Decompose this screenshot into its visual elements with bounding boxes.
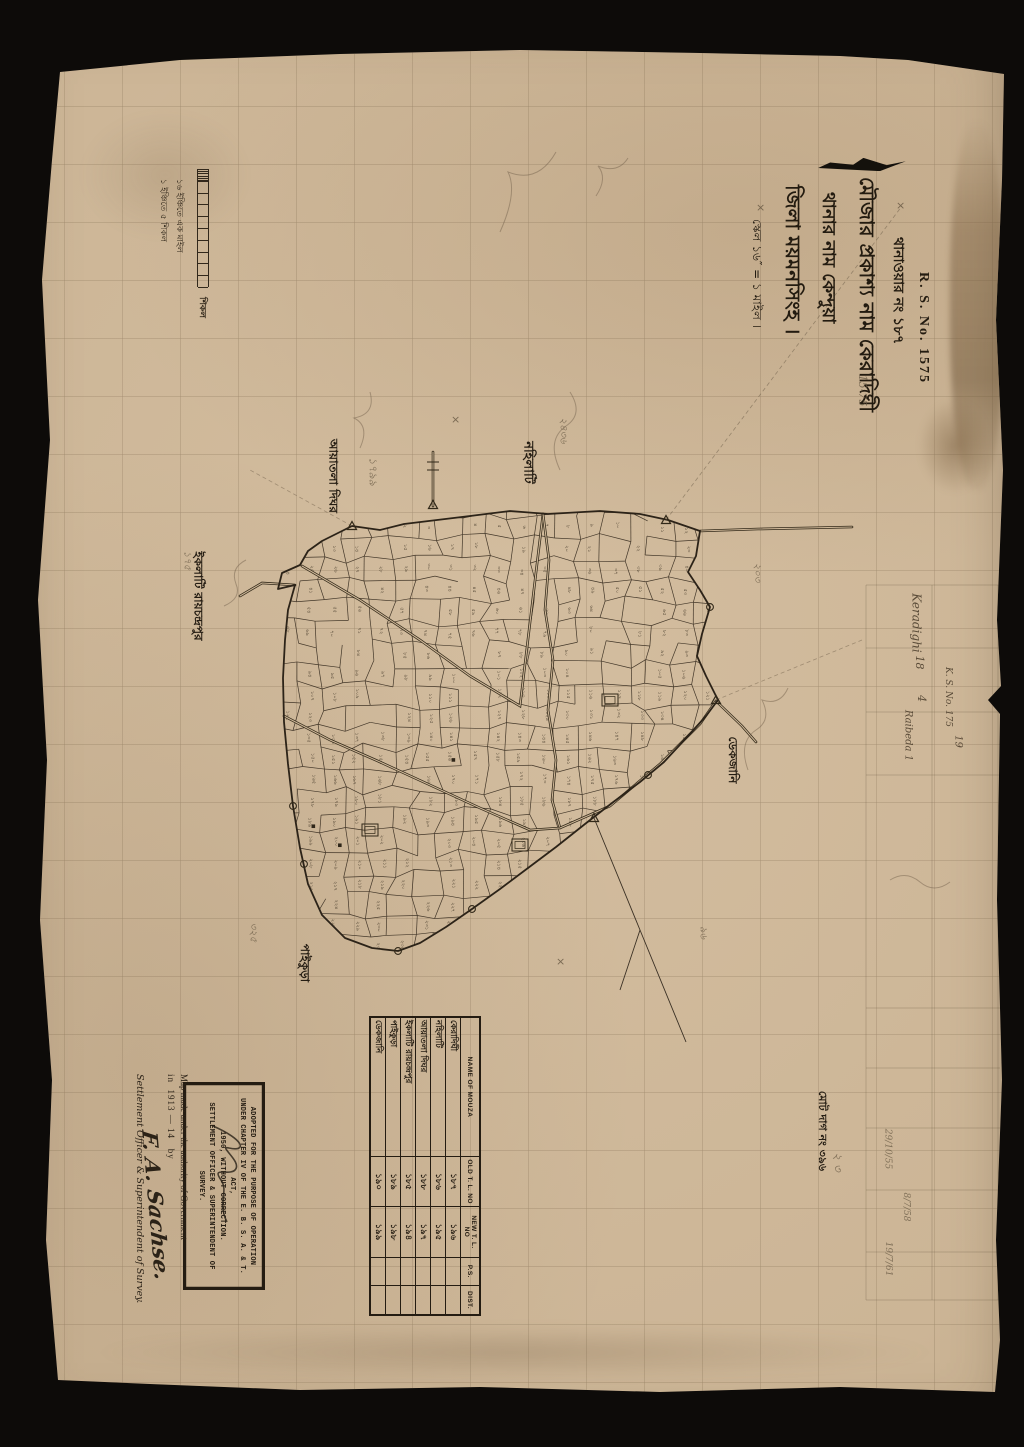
svg-text:৫৮: ৫৮ bbox=[447, 609, 453, 616]
svg-text:১৭৮: ১৭৮ bbox=[309, 798, 315, 808]
table-header: DIST. bbox=[461, 1285, 481, 1315]
table-cell bbox=[416, 1257, 431, 1285]
svg-text:১১৯: ১১৯ bbox=[656, 692, 662, 702]
svg-text:১৮৪: ১৮৪ bbox=[497, 797, 503, 807]
svg-text:১১৫: ১১৫ bbox=[565, 689, 571, 699]
handwritten-note: ২ ৩ bbox=[826, 1146, 846, 1178]
svg-text:২০১: ২০১ bbox=[355, 836, 361, 846]
table-row: আয়াতলা দিঘর১৮৮১৯৭ bbox=[416, 1017, 431, 1315]
table-cell bbox=[386, 1257, 401, 1285]
svg-text:২৫: ২৫ bbox=[308, 565, 314, 572]
scale-rung bbox=[198, 228, 208, 229]
svg-text:৯৮: ৯৮ bbox=[403, 674, 409, 681]
stain-bottom bbox=[90, 1325, 940, 1380]
handwritten-note: 18 bbox=[913, 651, 926, 674]
svg-text:২১৯: ২১৯ bbox=[379, 880, 385, 890]
svg-text:১৬: ১৬ bbox=[426, 544, 432, 551]
svg-text:১০৫: ১০৫ bbox=[656, 669, 662, 679]
svg-text:২২০: ২২০ bbox=[400, 880, 406, 890]
svg-text:১৯৯: ১৯৯ bbox=[308, 836, 314, 846]
table-cell: ডেকজানি bbox=[370, 1017, 386, 1156]
svg-text:১৪৭: ১৪৭ bbox=[613, 731, 619, 741]
svg-text:১৪২: ১৪২ bbox=[495, 732, 501, 742]
svg-text:১০৯: ১০৯ bbox=[354, 689, 360, 699]
svg-text:২৩: ২৩ bbox=[685, 546, 691, 553]
svg-text:১০০: ১০০ bbox=[450, 674, 456, 684]
table-cell: ১৮৭ bbox=[446, 1156, 461, 1206]
handwritten-note: 19/7/61 bbox=[883, 1235, 893, 1283]
svg-text:১৬৩: ১৬৩ bbox=[611, 755, 617, 765]
paper-tear-gash bbox=[818, 156, 907, 175]
rs-number: R. S. No. 1575 bbox=[915, 272, 931, 487]
stamp-line-5: SURVEY. bbox=[196, 1088, 206, 1284]
svg-text:১৯৩: ১৯৩ bbox=[425, 817, 431, 827]
table-row: ডেকজানি১৯০১৯৯ bbox=[370, 1017, 386, 1315]
stamp-line-4: SETTLEMENT OFFICER & SUPERINTENDENT OF bbox=[206, 1088, 216, 1284]
svg-text:১৩০: ১৩০ bbox=[564, 710, 570, 720]
svg-text:২২৬: ২২৬ bbox=[425, 902, 431, 913]
svg-text:১১৪: ১১৪ bbox=[546, 689, 552, 699]
svg-text:১৯: ১৯ bbox=[520, 546, 526, 553]
svg-text:৭০: ৭০ bbox=[328, 630, 334, 637]
boundary-circle bbox=[707, 604, 714, 611]
svg-text:৯১: ৯১ bbox=[589, 648, 595, 655]
table-cell bbox=[446, 1257, 461, 1285]
svg-text:১৮৮: ১৮৮ bbox=[591, 796, 597, 806]
plot-mesh bbox=[268, 491, 749, 962]
handwritten-note: 8/7/58 bbox=[901, 1186, 911, 1228]
handwritten-note: ৯৬ bbox=[694, 922, 711, 944]
svg-text:২২৮: ২২৮ bbox=[329, 919, 335, 930]
svg-text:৯৪: ৯৪ bbox=[307, 671, 313, 678]
svg-text:১৯২: ১৯২ bbox=[401, 814, 407, 824]
svg-text:৭২: ৭২ bbox=[378, 628, 384, 635]
svg-text:৬৫: ৬৫ bbox=[661, 609, 667, 616]
svg-text:২৩১: ২৩১ bbox=[423, 920, 429, 930]
svg-text:১৯০: ১৯০ bbox=[331, 817, 337, 827]
svg-text:৪৩: ৪৩ bbox=[423, 585, 429, 592]
svg-text:৯: ৯ bbox=[588, 524, 594, 527]
svg-text:১৭৫: ১৭৫ bbox=[589, 775, 595, 785]
margin-form-lines bbox=[866, 585, 1000, 1300]
svg-text:১৩৭: ১৩৭ bbox=[353, 732, 359, 742]
svg-text:২২৪: ২২৪ bbox=[333, 900, 339, 910]
svg-text:৮৬: ৮৬ bbox=[425, 653, 431, 660]
scale-rung bbox=[198, 275, 208, 276]
svg-text:১৪৩: ১৪৩ bbox=[516, 732, 522, 742]
svg-text:১৩৮: ১৩৮ bbox=[379, 731, 385, 741]
scale-note-2: ১ ইঞ্চিতে ৫ শিকল bbox=[155, 179, 171, 313]
svg-text:২১১: ২১১ bbox=[382, 859, 388, 869]
scale-unit-label: শিকল bbox=[195, 297, 210, 318]
svg-text:১৬৬: ১৬৬ bbox=[332, 775, 338, 785]
table-cell: কেরাদিঘী bbox=[446, 1017, 461, 1156]
svg-text:১৯৮: ১৯৮ bbox=[567, 817, 573, 827]
svg-text:১৫০: ১৫০ bbox=[310, 753, 316, 763]
svg-text:২০: ২০ bbox=[564, 545, 570, 552]
boundary-circle bbox=[301, 861, 308, 868]
svg-text:১৬৮: ১৬৮ bbox=[377, 776, 383, 786]
svg-text:২২১: ২২১ bbox=[451, 879, 457, 889]
svg-text:১৩৩: ১৩৩ bbox=[639, 710, 645, 720]
scale-rung bbox=[198, 287, 208, 288]
svg-text:২১০: ২১০ bbox=[357, 860, 363, 870]
scale-rung bbox=[198, 216, 208, 217]
svg-text:৭৭: ৭৭ bbox=[493, 627, 499, 634]
svg-text:৪০: ৪০ bbox=[684, 566, 690, 573]
mouza-name-line: মৌজার প্রকাশ্য নাম কেরাদিঘী bbox=[848, 177, 881, 487]
boundary-circle bbox=[290, 803, 297, 810]
svg-text:৭৩: ৭৩ bbox=[398, 628, 404, 635]
svg-text:১০৮: ১০৮ bbox=[332, 692, 338, 702]
scale-rung bbox=[198, 240, 208, 241]
svg-text:৯২: ৯২ bbox=[659, 650, 665, 657]
svg-text:১৫৯: ১৫৯ bbox=[515, 753, 521, 763]
neighbour-mouza-label: আয়াতলা দিঘর bbox=[322, 424, 342, 527]
attribution-line-1: Map made under the authority of Governme… bbox=[179, 1074, 189, 1314]
svg-text:১০৬: ১০৬ bbox=[681, 670, 687, 680]
svg-text:২১৪: ২১৪ bbox=[495, 860, 501, 870]
svg-text:৪: ৪ bbox=[472, 523, 478, 526]
svg-text:১৮১: ১৮১ bbox=[377, 794, 383, 804]
table-cell: ইকলাটি রায়চন্দ্রপুর bbox=[401, 1017, 416, 1156]
table-cell: ১৯৫ bbox=[431, 1207, 446, 1257]
svg-text:৫০: ৫০ bbox=[614, 587, 620, 594]
svg-text:৩৫: ৩৫ bbox=[541, 566, 547, 573]
svg-text:১১১: ১১১ bbox=[447, 693, 453, 703]
svg-text:১৯১: ১৯১ bbox=[353, 815, 359, 825]
svg-text:১৬২: ১৬২ bbox=[586, 753, 592, 763]
attribution-years: 1913 — 14 bbox=[166, 1090, 176, 1140]
svg-text:৩২: ৩২ bbox=[471, 564, 477, 571]
neighbour-mouza-label: ডেকজানি bbox=[721, 727, 741, 793]
svg-text:১২৭: ১২৭ bbox=[496, 710, 502, 720]
svg-text:২০৭: ২০৭ bbox=[545, 837, 551, 847]
svg-text:২১৬: ২১৬ bbox=[308, 882, 314, 892]
svg-text:২৩২: ২৩২ bbox=[445, 921, 451, 931]
mouza-boundary bbox=[278, 511, 718, 951]
svg-text:৬৯: ৬৯ bbox=[304, 629, 310, 636]
svg-text:৫: ৫ bbox=[496, 525, 502, 528]
table-row: ইকলাটি রায়চন্দ্রপুর১৮৫১৯৪ bbox=[401, 1017, 416, 1315]
svg-text:৮৫: ৮৫ bbox=[402, 652, 408, 659]
scale-subtick bbox=[198, 173, 208, 174]
svg-text:৮১: ৮১ bbox=[636, 631, 642, 638]
svg-text:৩৭: ৩৭ bbox=[613, 568, 619, 575]
title-block: R. S. No. 1575 থানাওয়ার নং ১৮৭ মৌজার প্… bbox=[753, 177, 923, 487]
scale-subtick bbox=[198, 178, 208, 179]
handwritten-note: 15-75 bbox=[856, 369, 869, 412]
table-cell bbox=[386, 1285, 401, 1315]
svg-text:১২৩: ১২৩ bbox=[307, 712, 313, 722]
mouza-table: NAME OF MOUZAOLD T. L. NONEW T. L. NOP.S… bbox=[369, 1016, 481, 1316]
svg-text:৩: ৩ bbox=[425, 526, 431, 530]
plot-numbers: ১২৩৪৫৬৭৮৯১০১১১২১৩১৪১৫১৬১৭১৮১৯২০২১২২২৩২৪২… bbox=[284, 522, 711, 953]
svg-text:১৮৯: ১৮৯ bbox=[307, 818, 313, 828]
trijunction-triangle bbox=[662, 516, 671, 524]
svg-text:১২৪: ১২৪ bbox=[406, 712, 412, 722]
trijunction-triangle bbox=[712, 696, 721, 704]
table-cell bbox=[401, 1257, 416, 1285]
pencil-cross: × bbox=[896, 199, 905, 212]
svg-text:১৭৪: ১৭৪ bbox=[566, 776, 572, 786]
svg-text:৪৮: ৪৮ bbox=[566, 587, 572, 594]
svg-text:৬৭: ৬৭ bbox=[705, 609, 711, 616]
table-cell bbox=[370, 1257, 386, 1285]
svg-text:৮৭: ৮৭ bbox=[496, 651, 502, 658]
svg-text:৮৩: ৮৩ bbox=[683, 629, 689, 636]
svg-text:৮৯: ৮৯ bbox=[539, 651, 545, 658]
svg-text:৪৭: ৪৭ bbox=[519, 588, 525, 595]
svg-text:২০৬: ২০৬ bbox=[520, 837, 526, 848]
paper-edge-nick bbox=[986, 688, 1004, 714]
svg-text:২২৩: ২২৩ bbox=[497, 881, 503, 892]
svg-text:১৮৫: ১৮৫ bbox=[519, 796, 525, 806]
svg-text:২০২: ২০২ bbox=[378, 835, 384, 845]
handwritten-note: ২০৩ bbox=[748, 559, 765, 587]
svg-text:১৭৭: ১৭৭ bbox=[638, 775, 644, 785]
adoption-stamp: ADOPTED FOR THE PURPOSE OF OPERATION UND… bbox=[183, 1082, 265, 1290]
svg-text:১১৩: ১১৩ bbox=[520, 688, 526, 698]
svg-text:১০: ১০ bbox=[614, 522, 620, 529]
table-header: NEW T. L. NO bbox=[461, 1207, 481, 1257]
svg-text:৪৫: ৪৫ bbox=[471, 586, 477, 593]
svg-text:৩৮: ৩৮ bbox=[635, 566, 641, 573]
scale-text-line: স্কেল ১৬″ = ১ মাইল । bbox=[745, 219, 765, 487]
handwritten-note: Raibeda 1 bbox=[903, 704, 914, 768]
table-cell bbox=[370, 1285, 386, 1315]
svg-text:২৯: ২৯ bbox=[403, 566, 409, 573]
svg-text:১৪৬: ১৪৬ bbox=[587, 731, 593, 741]
table-cell: ১৯০ bbox=[370, 1156, 386, 1206]
svg-text:১৫৬: ১৫৬ bbox=[447, 751, 453, 761]
mouza-table-wrap: NAME OF MOUZAOLD T. L. NONEW T. L. NOP.S… bbox=[369, 1016, 481, 1316]
svg-text:৩১: ৩১ bbox=[447, 564, 453, 571]
svg-text:১৮০: ১৮০ bbox=[353, 796, 359, 806]
svg-text:১৪১: ১৪১ bbox=[448, 732, 454, 742]
svg-text:২২৯: ২২৯ bbox=[354, 921, 360, 931]
svg-text:১২০: ১২০ bbox=[682, 690, 688, 700]
svg-text:২০৫: ২০৫ bbox=[495, 839, 501, 849]
thana-name-line: থানার নাম কেন্দুয়া bbox=[812, 192, 843, 487]
attribution-by: by bbox=[166, 1149, 176, 1160]
table-header: NAME OF MOUZA bbox=[461, 1017, 481, 1156]
svg-text:৫৩: ৫৩ bbox=[682, 589, 688, 596]
svg-text:৫১: ৫১ bbox=[637, 586, 643, 593]
stamp-line-1: ADOPTED FOR THE PURPOSE OF OPERATION bbox=[247, 1088, 257, 1284]
svg-text:১৭৬: ১৭৬ bbox=[613, 775, 619, 785]
svg-text:৮০: ৮০ bbox=[588, 626, 594, 633]
svg-text:১২৯: ১২৯ bbox=[544, 711, 550, 721]
pencil-cross: × bbox=[556, 955, 565, 968]
boundary-circle bbox=[469, 906, 476, 913]
svg-text:২০৯: ২০৯ bbox=[332, 860, 338, 870]
boundary-circle bbox=[395, 948, 402, 955]
boundary-circle bbox=[645, 772, 652, 779]
svg-text:১৪: ১৪ bbox=[354, 546, 360, 553]
table-cell bbox=[431, 1285, 446, 1315]
svg-text:১২৬: ১২৬ bbox=[447, 713, 453, 723]
svg-text:১১২: ১১২ bbox=[497, 688, 503, 698]
svg-text:২: ২ bbox=[401, 525, 407, 528]
table-cell bbox=[446, 1285, 461, 1315]
svg-text:১৫৮: ১৫৮ bbox=[495, 752, 501, 762]
svg-text:১৪৪: ১৪৪ bbox=[540, 734, 546, 744]
table-cell: ১৮৬ bbox=[431, 1156, 446, 1206]
trijunction-triangle bbox=[429, 501, 438, 509]
table-header: OLD T. L. NO bbox=[461, 1156, 481, 1206]
svg-text:২১: ২১ bbox=[586, 546, 592, 553]
svg-text:৪৬: ৪৬ bbox=[496, 588, 502, 595]
svg-text:৫৫: ৫৫ bbox=[332, 606, 338, 613]
svg-text:৪৯: ৪৯ bbox=[590, 587, 596, 594]
table-row: পাইকুড়া১৮৯১৯৮ bbox=[386, 1017, 401, 1315]
svg-text:১০৩: ১০৩ bbox=[541, 668, 547, 678]
svg-text:২১৭: ২১৭ bbox=[332, 881, 338, 891]
svg-text:১৭১: ১৭১ bbox=[473, 775, 479, 785]
table-row: নহিলাটি১৮৬১৯৫ bbox=[431, 1017, 446, 1315]
svg-text:৮২: ৮২ bbox=[661, 630, 667, 637]
district-line: জিলা ময়মনসিংহ । bbox=[774, 185, 807, 487]
svg-text:১০৪: ১০৪ bbox=[564, 668, 570, 678]
svg-text:২১২: ২১২ bbox=[404, 858, 410, 868]
svg-text:১১৭: ১১৭ bbox=[616, 690, 622, 700]
svg-text:২০৪: ২০৪ bbox=[470, 837, 476, 847]
svg-text:১৩৬: ১৩৬ bbox=[330, 734, 336, 744]
pencil-cross: × bbox=[451, 413, 460, 426]
svg-text:১৫৫: ১৫৫ bbox=[424, 752, 430, 762]
svg-text:৬৪: ৬৪ bbox=[588, 606, 594, 613]
svg-text:১৬৫: ১৬৫ bbox=[311, 774, 317, 784]
svg-text:৭৬: ৭৬ bbox=[470, 630, 476, 637]
svg-text:১৩৪: ১৩৪ bbox=[659, 711, 665, 721]
table-cell: ১৯৯ bbox=[370, 1207, 386, 1257]
svg-text:১৩২: ১৩২ bbox=[616, 708, 622, 718]
scale-rung bbox=[198, 252, 208, 253]
handwritten-note: 19 bbox=[953, 731, 964, 753]
svg-text:৯৩: ৯৩ bbox=[683, 650, 689, 657]
svg-text:২১৮: ২১৮ bbox=[357, 879, 363, 889]
svg-text:১১৮: ১১৮ bbox=[636, 691, 642, 701]
svg-text:১৪০: ১৪০ bbox=[428, 732, 434, 742]
svg-text:৬২: ৬২ bbox=[543, 609, 549, 616]
svg-text:৫২: ৫২ bbox=[659, 588, 665, 595]
svg-text:১৬০: ১৬০ bbox=[541, 754, 547, 764]
svg-text:১৫: ১৫ bbox=[402, 544, 408, 551]
svg-text:৭৯: ৭৯ bbox=[541, 631, 547, 638]
attribution-block: Map made under the authority of Governme… bbox=[105, 1074, 189, 1314]
svg-text:১৫২: ১৫২ bbox=[350, 754, 356, 764]
svg-text:২০০: ২০০ bbox=[333, 837, 339, 847]
svg-text:২১৫: ২১৫ bbox=[517, 859, 523, 869]
svg-text:১৭৩: ১৭৩ bbox=[542, 774, 548, 784]
svg-text:১৫৭: ১৫৭ bbox=[472, 751, 478, 761]
scale-subtick bbox=[198, 176, 208, 177]
svg-text:৯৭: ৯৭ bbox=[380, 671, 386, 678]
svg-text:২১৩: ২১৩ bbox=[447, 857, 453, 867]
svg-text:২৭: ২৭ bbox=[354, 566, 360, 573]
svg-text:৭৫: ৭৫ bbox=[446, 633, 452, 640]
handwritten-note: K. S. No. 175 bbox=[943, 657, 953, 737]
scale-bar: শিকল bbox=[197, 169, 209, 287]
pencil-cross: × bbox=[756, 201, 765, 214]
handwritten-note: ২৪৩৬ bbox=[554, 414, 571, 448]
svg-text:১৪৮: ১৪৮ bbox=[639, 731, 645, 741]
svg-text:২৩৩: ২৩৩ bbox=[375, 943, 381, 954]
scale-rung bbox=[198, 263, 208, 264]
table-cell: পাইকুড়া bbox=[386, 1017, 401, 1156]
svg-text:৪১: ৪১ bbox=[308, 587, 314, 594]
svg-text:১৮৬: ১৮৬ bbox=[540, 797, 546, 807]
svg-text:৩৬: ৩৬ bbox=[586, 568, 592, 575]
svg-text:২০৩: ২০৩ bbox=[446, 838, 452, 849]
thana-war-number: থানাওয়ার নং ১৮৭ bbox=[886, 237, 910, 487]
svg-text:৪৪: ৪৪ bbox=[446, 585, 452, 592]
svg-text:১০৭: ১০৭ bbox=[309, 691, 315, 701]
svg-text:১৪৯: ১৪৯ bbox=[681, 733, 687, 743]
scale-subtick bbox=[198, 171, 208, 172]
svg-text:১২: ১২ bbox=[683, 527, 689, 534]
svg-text:৮: ৮ bbox=[565, 525, 571, 529]
svg-text:১১০: ১১০ bbox=[427, 693, 433, 703]
scale-rung bbox=[198, 169, 208, 170]
svg-text:১৩৯: ১৩৯ bbox=[406, 733, 412, 743]
svg-text:৮৪: ৮৪ bbox=[355, 650, 361, 657]
svg-text:১৭২: ১৭২ bbox=[518, 771, 524, 781]
handwritten-note: ১৭৫ bbox=[178, 547, 195, 575]
svg-text:১২৮: ১২৮ bbox=[520, 710, 526, 720]
table-header: P.S. bbox=[461, 1257, 481, 1285]
svg-text:১৯৬: ১৯৬ bbox=[497, 817, 503, 827]
svg-text:১৬১: ১৬১ bbox=[565, 755, 571, 765]
svg-text:২৮: ২৮ bbox=[377, 566, 383, 573]
scale-bar-block: শিকল ১৬ ইঞ্চিতে এক মাইল ১ ইঞ্চিতে ৫ শিকল bbox=[123, 163, 209, 313]
svg-text:২৩০: ২৩০ bbox=[375, 922, 381, 932]
svg-text:১৯৪: ১৯৪ bbox=[450, 816, 456, 826]
svg-text:১৭৯: ১৭৯ bbox=[333, 797, 339, 807]
svg-text:১১: ১১ bbox=[659, 526, 665, 533]
svg-text:১৮৩: ১৮৩ bbox=[453, 796, 459, 806]
svg-text:৬১: ৬১ bbox=[517, 607, 523, 614]
scale-notes: ১৬ ইঞ্চিতে এক মাইল ১ ইঞ্চিতে ৫ শিকল bbox=[155, 179, 187, 313]
svg-text:৭: ৭ bbox=[543, 524, 549, 527]
table-row: কেরাদিঘী১৮৭১৯৬ bbox=[446, 1017, 461, 1315]
handwritten-note: ৩২৫ bbox=[244, 919, 261, 947]
table-cell: ১৯৭ bbox=[416, 1207, 431, 1257]
svg-text:১৬৪: ১৬৪ bbox=[659, 754, 665, 764]
table-cell: ১৯৬ bbox=[446, 1207, 461, 1257]
svg-text:৯৬: ৯৬ bbox=[353, 670, 359, 677]
table-cell: ১৯৪ bbox=[401, 1207, 416, 1257]
svg-text:২২৭: ২২৭ bbox=[449, 902, 455, 912]
svg-text:৮৮: ৮৮ bbox=[517, 652, 523, 659]
svg-text:১৩৫: ১৩৫ bbox=[306, 733, 312, 743]
svg-text:১৪৫: ১৪৫ bbox=[564, 734, 570, 744]
svg-text:৫৯: ৫৯ bbox=[470, 609, 476, 616]
svg-text:১: ১ bbox=[353, 525, 359, 528]
svg-text:১৫৪: ১৫৪ bbox=[403, 755, 409, 765]
handwritten-note: ১৭৯৯ bbox=[362, 453, 381, 489]
svg-text:৭৪: ৭৪ bbox=[422, 630, 428, 637]
svg-text:১৫১: ১৫১ bbox=[330, 755, 336, 765]
table-cell bbox=[401, 1285, 416, 1315]
svg-text:১৭: ১৭ bbox=[449, 544, 455, 551]
svg-text:২৬: ২৬ bbox=[333, 566, 339, 573]
svg-text:১৭০: ১৭০ bbox=[450, 775, 456, 785]
handwritten-note: 4 bbox=[914, 690, 927, 707]
svg-text:৬: ৬ bbox=[521, 526, 527, 530]
scanned-cadastral-map: ১২৩৪৫৬৭৮৯১০১১১২১৩১৪১৫১৬১৭১৮১৯২০২১২২২৩২৪২… bbox=[0, 0, 1024, 1447]
